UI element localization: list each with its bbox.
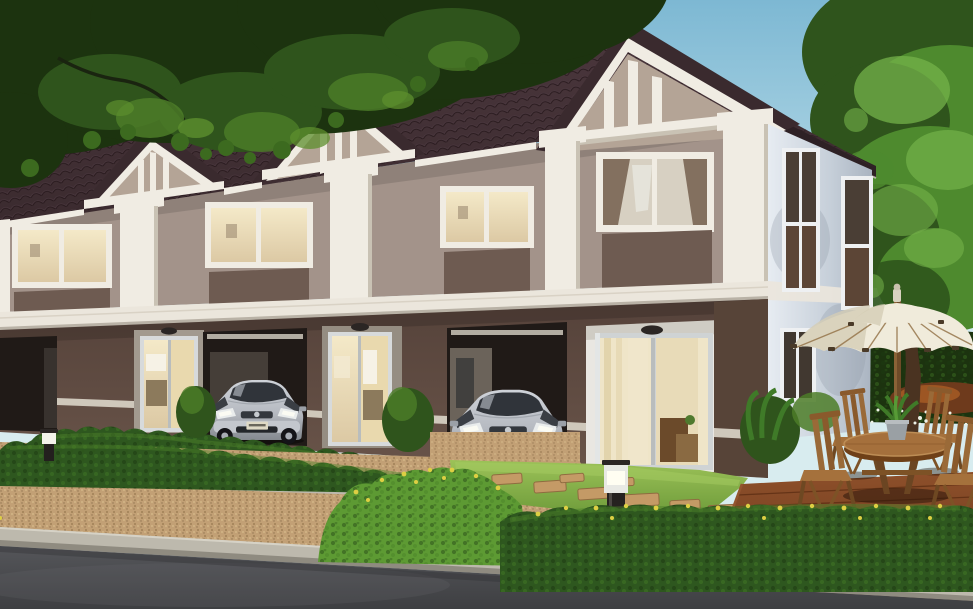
window-4-corner	[596, 152, 714, 289]
window-1	[12, 224, 112, 314]
side-window-upper-2	[841, 176, 873, 310]
townhouse-exterior-photo	[0, 0, 973, 609]
side-window-upper-1	[782, 148, 820, 292]
door-lamp-1	[161, 327, 177, 334]
window-3	[440, 186, 534, 297]
door-lamp-3	[641, 325, 663, 334]
window-2	[205, 202, 313, 304]
door-lamp-2	[351, 323, 369, 331]
scene-canvas	[0, 0, 973, 609]
sliding-door-3-corner	[586, 320, 720, 472]
